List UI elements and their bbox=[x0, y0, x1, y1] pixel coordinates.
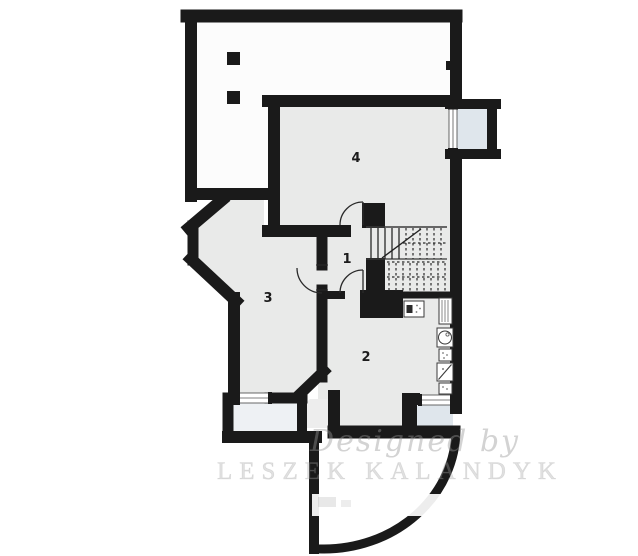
window-room2-south bbox=[418, 394, 454, 406]
window-well-left bbox=[233, 403, 297, 431]
room-1-label: 1 bbox=[342, 252, 351, 267]
window-room4-east bbox=[448, 106, 458, 152]
window-room3-south bbox=[236, 392, 272, 404]
floor-plan-page: 1 2 3 4 Designed by LESZEK KALANDYK bbox=[0, 0, 638, 556]
pillar bbox=[227, 52, 240, 65]
cabinet-icon-2 bbox=[439, 383, 452, 394]
watermark-smudge bbox=[341, 500, 351, 507]
watermark-smudge bbox=[318, 497, 336, 507]
cabinet-icon bbox=[439, 349, 452, 361]
room-2-label: 2 bbox=[361, 350, 370, 365]
room-3-label: 3 bbox=[263, 291, 272, 306]
room-4-label: 4 bbox=[351, 151, 360, 166]
radiator-icon bbox=[439, 298, 452, 324]
window-well-top-right bbox=[456, 107, 490, 151]
room-4-floor bbox=[268, 101, 452, 232]
pillar bbox=[227, 91, 240, 104]
watermark-line2: LESZEK KALANDYK bbox=[217, 458, 563, 485]
floor-plan-drawing: 1 2 3 4 Designed by LESZEK KALANDYK bbox=[0, 0, 638, 556]
furnace-icon bbox=[404, 301, 424, 317]
washing-machine-icon bbox=[437, 328, 453, 347]
window-well-bottom-right bbox=[417, 404, 453, 426]
watermark-line1: Designed by bbox=[309, 424, 520, 459]
shower-tray-icon bbox=[437, 363, 453, 381]
wall-nub bbox=[446, 61, 454, 70]
